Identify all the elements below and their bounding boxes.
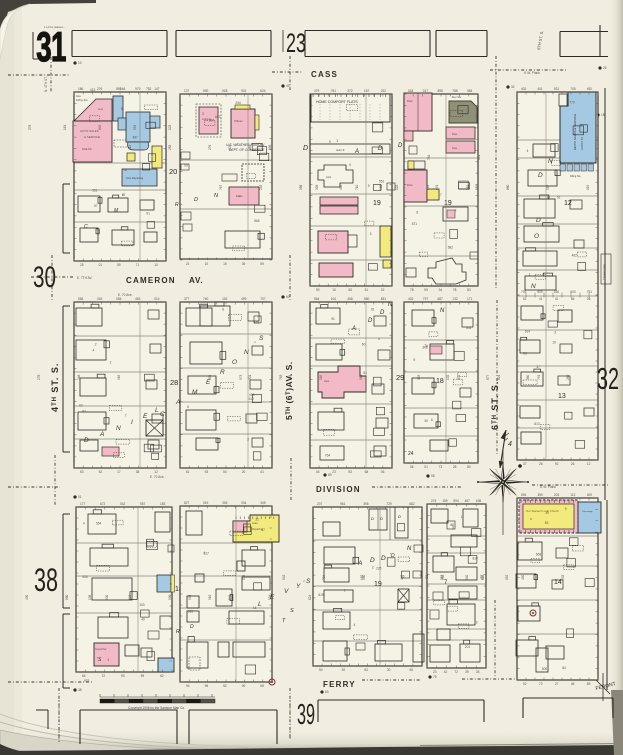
svg-text:72: 72 — [454, 670, 458, 674]
svg-text:413: 413 — [90, 88, 96, 92]
svg-text:901: 901 — [241, 89, 247, 93]
svg-text:23: 23 — [433, 670, 437, 674]
svg-text:65: 65 — [348, 288, 352, 292]
svg-text:41: 41 — [555, 297, 559, 301]
svg-text:92: 92 — [523, 682, 527, 686]
svg-text:1: 1 — [461, 515, 463, 519]
svg-text:9: 9 — [121, 107, 123, 111]
svg-text:710: 710 — [355, 184, 359, 190]
svg-text:359: 359 — [537, 493, 543, 497]
svg-text:10: 10 — [78, 61, 82, 65]
svg-text:N: N — [116, 425, 121, 432]
svg-text:973: 973 — [239, 374, 243, 380]
svg-text:839: 839 — [208, 374, 212, 380]
svg-text:S: S — [306, 578, 311, 585]
svg-text:84: 84 — [562, 666, 566, 670]
svg-text:9: 9 — [565, 507, 567, 511]
svg-text:88: 88 — [450, 523, 454, 527]
svg-text:91: 91 — [331, 317, 335, 321]
svg-text:Auto: Auto — [98, 108, 104, 111]
svg-text:4: 4 — [508, 441, 512, 448]
svg-text:78: 78 — [453, 288, 457, 292]
svg-text:81: 81 — [547, 196, 551, 200]
svg-text:76: 76 — [424, 344, 428, 348]
svg-text:052: 052 — [505, 574, 509, 580]
svg-text:186: 186 — [78, 87, 84, 91]
svg-text:957: 957 — [546, 184, 550, 190]
svg-text:078: 078 — [28, 124, 32, 130]
svg-text:729: 729 — [386, 502, 392, 506]
svg-text:N: N — [440, 308, 445, 314]
svg-text:207: 207 — [317, 502, 323, 506]
svg-text:'S: 'S — [97, 657, 102, 663]
svg-text:928: 928 — [222, 89, 228, 93]
svg-text:E: E — [143, 413, 148, 420]
svg-text:315: 315 — [188, 610, 194, 614]
svg-text:E: E — [270, 594, 275, 601]
svg-text:93: 93 — [121, 674, 125, 678]
svg-text:62: 62 — [160, 674, 164, 678]
svg-text:Greenhse: Greenhse — [95, 647, 107, 651]
svg-text:880: 880 — [506, 184, 510, 190]
svg-text:468: 468 — [347, 297, 353, 301]
svg-text:3: 3 — [476, 620, 478, 624]
svg-text:7: 7 — [125, 414, 127, 418]
svg-text:278: 278 — [37, 374, 41, 380]
svg-text:D: D — [84, 437, 89, 444]
svg-text:400: 400 — [587, 493, 593, 497]
svg-text:499: 499 — [241, 297, 247, 301]
svg-text:37: 37 — [523, 462, 527, 466]
svg-text:116: 116 — [319, 375, 323, 380]
svg-text:FERRY: FERRY — [323, 680, 356, 689]
svg-text:D: D — [536, 217, 541, 224]
svg-text:31: 31 — [255, 518, 259, 522]
svg-text:554: 554 — [96, 522, 102, 526]
svg-text:916: 916 — [208, 594, 212, 600]
svg-text:N. 4TH ST.: N. 4TH ST. — [44, 76, 48, 92]
svg-text:Filling Sta: Filling Sta — [76, 98, 88, 102]
svg-text:39: 39 — [242, 262, 246, 266]
svg-text:D: D — [538, 172, 543, 179]
svg-text:487: 487 — [465, 499, 471, 503]
svg-text:08: 08 — [431, 474, 435, 478]
svg-text:12: 12 — [564, 200, 572, 207]
svg-text:533: 533 — [561, 574, 565, 580]
svg-text:6ᵀᴴ ST. S.: 6ᵀᴴ ST. S. — [490, 381, 500, 430]
svg-text:492: 492 — [587, 87, 593, 91]
svg-text:60: 60 — [362, 343, 366, 347]
svg-text:Flats: Flats — [407, 99, 413, 103]
svg-text:80: 80 — [467, 465, 471, 469]
svg-text:R: R — [220, 369, 225, 376]
svg-text:S: S — [290, 608, 294, 614]
svg-text:M: M — [192, 389, 198, 396]
svg-text:159: 159 — [442, 499, 448, 503]
svg-text:61: 61 — [365, 288, 369, 292]
svg-text:Elec.Sta: Elec.Sta — [452, 96, 462, 99]
svg-text:32: 32 — [511, 85, 515, 89]
svg-text:01: 01 — [78, 495, 82, 499]
svg-text:32: 32 — [597, 361, 619, 396]
svg-text:5ᵀᴴ (6ᵀ)AV. S.: 5ᵀᴴ (6ᵀ)AV. S. — [284, 361, 294, 420]
svg-text:41: 41 — [260, 470, 264, 474]
svg-text:740: 740 — [203, 297, 209, 301]
svg-text:Flats: Flats — [236, 194, 243, 198]
svg-text:Flats: Flats — [452, 133, 458, 136]
svg-text:59: 59 — [260, 262, 264, 266]
svg-text:92: 92 — [555, 462, 559, 466]
svg-text:5: 5 — [413, 358, 415, 362]
svg-text:620: 620 — [481, 574, 485, 580]
svg-text:38: 38 — [78, 688, 82, 692]
svg-text:483: 483 — [248, 144, 252, 150]
svg-text:85: 85 — [587, 682, 591, 686]
svg-text:86: 86 — [571, 297, 575, 301]
svg-text:705: 705 — [570, 87, 576, 91]
svg-text:244: 244 — [235, 101, 241, 105]
svg-text:4: 4 — [354, 623, 356, 627]
svg-text:797: 797 — [423, 297, 429, 301]
svg-text:01: 01 — [99, 263, 103, 267]
svg-text:558: 558 — [78, 297, 84, 301]
svg-text:30: 30 — [33, 261, 56, 294]
svg-text:360: 360 — [526, 374, 530, 380]
svg-text:09: 09 — [242, 684, 246, 688]
svg-text:784: 784 — [427, 154, 431, 160]
svg-text:056: 056 — [116, 297, 122, 301]
svg-text:4: 4 — [378, 337, 380, 341]
svg-text:38: 38 — [136, 470, 140, 474]
svg-text:961: 961 — [340, 502, 346, 506]
svg-text:19: 19 — [552, 341, 556, 345]
svg-text:79: 79 — [433, 675, 437, 679]
svg-text:283: 283 — [168, 144, 172, 150]
svg-text:767: 767 — [219, 184, 223, 190]
svg-text:Offices: Offices — [234, 119, 243, 123]
svg-text:764: 764 — [325, 453, 331, 457]
svg-text:801: 801 — [477, 154, 481, 160]
svg-text:691: 691 — [435, 184, 439, 190]
svg-text:3: 3 — [336, 139, 338, 143]
svg-text:Apts: Apts — [324, 379, 330, 383]
svg-text:784: 784 — [322, 574, 326, 580]
svg-text:39: 39 — [465, 670, 469, 674]
svg-text:752: 752 — [146, 87, 152, 91]
svg-text:E. 70 Ave.: E. 70 Ave. — [118, 293, 133, 297]
svg-text:D: D — [368, 318, 373, 324]
svg-text:333: 333 — [417, 374, 421, 380]
svg-text:557: 557 — [140, 502, 146, 506]
svg-text:20: 20 — [242, 470, 246, 474]
svg-text:21: 21 — [186, 262, 190, 266]
svg-text:Y: Y — [296, 583, 301, 590]
svg-text:Gas: Gas — [76, 94, 81, 98]
svg-text:193: 193 — [128, 594, 132, 600]
svg-text:65: 65 — [410, 668, 414, 672]
svg-text:78: 78 — [410, 288, 414, 292]
svg-text:83: 83 — [467, 288, 471, 292]
svg-text:500: 500 — [542, 667, 548, 671]
svg-text:D: D — [380, 310, 385, 316]
svg-text:HOME COMFORT FLATS: HOME COMFORT FLATS — [316, 100, 358, 104]
svg-text:171: 171 — [467, 297, 473, 301]
svg-text:26: 26 — [603, 66, 607, 70]
svg-text:593: 593 — [133, 124, 137, 130]
svg-text:R: R — [176, 629, 180, 635]
svg-text:AUTO SALES: AUTO SALES — [80, 129, 99, 133]
svg-text:305: 305 — [222, 501, 228, 505]
svg-text:5: 5 — [329, 140, 331, 144]
svg-text:328: 328 — [315, 184, 319, 190]
svg-text:161: 161 — [63, 124, 67, 130]
svg-text:29: 29 — [396, 373, 404, 382]
svg-text:41: 41 — [539, 297, 543, 301]
svg-text:396: 396 — [363, 502, 369, 506]
svg-text:083: 083 — [249, 393, 255, 397]
svg-text:462: 462 — [572, 254, 578, 258]
svg-text:182: 182 — [360, 574, 364, 580]
svg-text:19: 19 — [444, 200, 452, 207]
svg-text:65: 65 — [260, 684, 264, 688]
svg-text:99: 99 — [184, 164, 188, 168]
svg-text:12: 12 — [154, 470, 158, 474]
svg-text:32: 32 — [124, 168, 128, 172]
svg-text:19: 19 — [374, 581, 382, 588]
svg-text:990: 990 — [168, 594, 172, 600]
svg-text:V: V — [284, 588, 289, 595]
svg-text:377: 377 — [184, 297, 190, 301]
svg-text:N: N — [214, 193, 218, 199]
svg-text:61: 61 — [186, 470, 190, 474]
svg-text:02: 02 — [381, 288, 385, 292]
svg-text:731: 731 — [537, 374, 541, 380]
svg-text:CASS: CASS — [311, 70, 338, 79]
svg-text:D: D — [370, 557, 375, 564]
svg-text:62: 62 — [79, 403, 83, 407]
svg-text:401: 401 — [425, 574, 429, 580]
svg-text:542: 542 — [282, 574, 286, 580]
svg-text:624: 624 — [497, 374, 501, 380]
svg-text:017: 017 — [423, 89, 429, 93]
svg-text:2: 2 — [110, 361, 112, 365]
svg-text:8: 8 — [417, 210, 419, 214]
svg-text:4: 4 — [93, 348, 95, 352]
svg-text:84: 84 — [82, 409, 86, 413]
svg-text:& SERVICE: & SERVICE — [84, 135, 100, 139]
svg-text:3: 3 — [247, 437, 249, 441]
svg-text:707: 707 — [260, 297, 266, 301]
svg-text:51: 51 — [363, 371, 367, 375]
svg-text:136: 136 — [88, 594, 92, 600]
svg-text:92: 92 — [342, 668, 346, 672]
svg-text:248: 248 — [77, 374, 81, 380]
svg-text:Copyright 1906 by the Sanborn: Copyright 1906 by the Sanborn Map Co. — [128, 706, 185, 710]
svg-text:4: 4 — [108, 658, 110, 662]
svg-text:4: 4 — [461, 109, 463, 113]
svg-text:998: 998 — [188, 594, 192, 600]
svg-text:L.H.Co leases...: L.H.Co leases... — [44, 25, 66, 29]
svg-text:203: 203 — [554, 493, 560, 497]
svg-text:50: 50 — [319, 668, 323, 672]
svg-text:849: 849 — [98, 124, 102, 130]
svg-text:52: 52 — [223, 684, 227, 688]
svg-text:55: 55 — [117, 263, 121, 267]
svg-text:483: 483 — [135, 297, 141, 301]
svg-text:4ᵀᴴ ST. S.: 4ᵀᴴ ST. S. — [50, 363, 60, 412]
svg-text:430: 430 — [25, 594, 29, 600]
svg-text:222: 222 — [381, 89, 387, 93]
svg-text:6: 6 — [403, 574, 405, 578]
svg-text:590: 590 — [203, 89, 209, 93]
svg-text:503: 503 — [228, 144, 232, 150]
svg-text:26: 26 — [571, 462, 575, 466]
svg-text:487: 487 — [133, 135, 139, 139]
svg-text:751: 751 — [587, 290, 593, 294]
svg-text:R: R — [175, 202, 179, 208]
svg-text:94: 94 — [186, 684, 190, 688]
svg-text:043: 043 — [97, 297, 103, 301]
svg-text:10: 10 — [154, 263, 158, 267]
svg-text:83: 83 — [545, 521, 549, 525]
svg-text:93: 93 — [205, 470, 209, 474]
svg-text:46: 46 — [571, 682, 575, 686]
svg-text:898: 898 — [438, 89, 444, 93]
svg-text:274: 274 — [431, 499, 437, 503]
svg-text:D: D — [380, 516, 383, 521]
svg-text:D: D — [190, 624, 194, 630]
svg-text:317: 317 — [204, 551, 210, 555]
svg-text:560: 560 — [364, 297, 370, 301]
svg-text:104: 104 — [331, 297, 337, 301]
svg-text:Apts: Apts — [326, 175, 332, 179]
svg-text:014: 014 — [154, 297, 160, 301]
svg-text:6: 6 — [431, 418, 433, 422]
svg-text:06: 06 — [410, 465, 414, 469]
svg-text:551: 551 — [379, 180, 385, 184]
svg-text:72: 72 — [539, 682, 543, 686]
svg-text:Auto Repairing: Auto Repairing — [126, 176, 144, 180]
svg-text:4: 4 — [527, 149, 529, 153]
svg-text:827: 827 — [184, 501, 190, 505]
svg-text:6: 6 — [187, 405, 189, 409]
svg-text:201: 201 — [465, 645, 471, 649]
svg-text:D: D — [398, 514, 401, 519]
svg-text:167: 167 — [364, 89, 370, 93]
svg-text:57: 57 — [94, 204, 98, 208]
svg-text:A: A — [354, 149, 359, 155]
svg-text:61: 61 — [371, 307, 375, 311]
svg-text:90: 90 — [316, 288, 320, 292]
svg-text:015: 015 — [586, 184, 590, 190]
svg-text:606: 606 — [83, 575, 89, 579]
svg-text:543: 543 — [228, 594, 232, 600]
svg-text:Parsonage: Parsonage — [582, 510, 593, 513]
svg-text:792: 792 — [521, 290, 527, 294]
svg-text:603: 603 — [215, 115, 221, 119]
svg-text:498: 498 — [476, 499, 482, 503]
svg-text:72: 72 — [102, 674, 106, 678]
svg-text:103: 103 — [168, 124, 172, 130]
svg-text:103: 103 — [139, 603, 145, 607]
svg-text:53: 53 — [80, 470, 84, 474]
svg-text:10: 10 — [205, 262, 209, 266]
svg-text:DIVISION: DIVISION — [316, 485, 361, 494]
svg-text:3: 3 — [370, 232, 372, 236]
svg-text:112: 112 — [570, 493, 575, 497]
svg-text:2: 2 — [95, 342, 97, 346]
svg-text:893: 893 — [426, 184, 430, 190]
svg-text:06: 06 — [381, 470, 385, 474]
svg-text:19: 19 — [373, 200, 381, 207]
svg-text:668: 668 — [536, 553, 542, 557]
svg-text:FIRE PR.: FIRE PR. — [82, 148, 92, 151]
svg-text:372: 372 — [347, 89, 353, 93]
svg-text:68: 68 — [365, 470, 369, 474]
svg-text:Flats: Flats — [452, 147, 458, 150]
svg-text:Our Saviour's Luth Church: Our Saviour's Luth Church — [526, 509, 559, 513]
svg-text:147: 147 — [154, 87, 160, 91]
svg-text:978: 978 — [84, 679, 90, 683]
svg-text:A: A — [99, 431, 104, 438]
svg-text:034: 034 — [241, 501, 247, 505]
svg-text:23: 23 — [332, 470, 336, 474]
svg-text:513: 513 — [242, 574, 246, 580]
svg-text:59: 59 — [424, 288, 428, 292]
svg-text:788: 788 — [452, 89, 458, 93]
svg-text:Auto S: Auto S — [335, 148, 345, 152]
svg-text:42: 42 — [444, 670, 448, 674]
svg-text:30: 30 — [387, 668, 391, 672]
svg-text:43: 43 — [286, 84, 290, 88]
svg-text:810: 810 — [473, 557, 479, 561]
svg-text:132: 132 — [446, 374, 450, 380]
svg-text:042: 042 — [120, 502, 126, 506]
svg-text:L: L — [258, 601, 262, 608]
svg-text:2: 2 — [455, 209, 457, 213]
svg-text:177: 177 — [80, 502, 86, 506]
svg-text:60: 60 — [286, 295, 290, 299]
svg-text:305: 305 — [260, 501, 266, 505]
svg-text:260: 260 — [566, 374, 570, 380]
svg-text:3: 3 — [554, 331, 556, 335]
svg-text:59: 59 — [141, 674, 145, 678]
svg-text:379: 379 — [314, 89, 320, 93]
svg-text:980: 980 — [65, 594, 69, 600]
svg-text:D: D — [303, 145, 308, 152]
svg-text:763: 763 — [279, 374, 283, 380]
svg-text:614: 614 — [525, 330, 531, 334]
svg-text:401: 401 — [537, 87, 543, 91]
svg-text:A: A — [175, 399, 180, 406]
svg-text:669: 669 — [475, 184, 479, 190]
svg-text:MOTO SALES & SERVICE: MOTO SALES & SERVICE — [573, 114, 577, 150]
svg-text:019: 019 — [203, 501, 209, 505]
svg-text:500: 500 — [105, 594, 109, 600]
svg-text:8' W. Plank: 8' W. Plank — [540, 485, 556, 489]
svg-text:34: 34 — [439, 288, 443, 292]
svg-text:23: 23 — [286, 28, 306, 58]
svg-text:CAMERON: CAMERON — [126, 276, 176, 285]
svg-text:73: 73 — [439, 465, 443, 469]
svg-text:26: 26 — [539, 462, 543, 466]
svg-text:9: 9 — [368, 184, 370, 188]
svg-text:Filling Sta: Filling Sta — [570, 175, 581, 178]
svg-text:39: 39 — [545, 511, 549, 515]
svg-text:388: 388 — [299, 184, 303, 190]
svg-text:132: 132 — [452, 297, 458, 301]
svg-text:137: 137 — [184, 89, 190, 93]
